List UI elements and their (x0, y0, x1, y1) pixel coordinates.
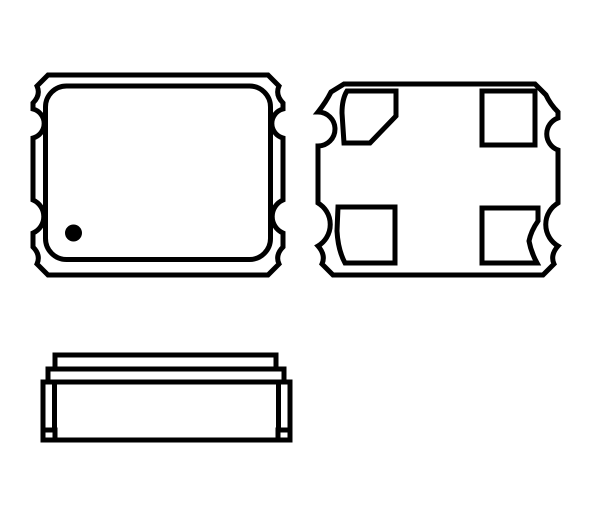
side-view-left-foot-pad (43, 430, 55, 440)
side-view-right-foot-pad (278, 430, 290, 440)
bottom-view-outer-outline (318, 84, 558, 275)
pin1-marker-dot (65, 225, 82, 242)
pad-2 (482, 91, 535, 145)
side-view-base-body (43, 382, 290, 440)
pad-1-chamfered (342, 91, 396, 143)
pad-3 (482, 208, 538, 263)
package-drawing (0, 0, 600, 514)
side-view (43, 355, 290, 440)
bottom-view (318, 84, 558, 275)
pad-4 (337, 207, 395, 263)
package-outline-drawing-page (0, 0, 600, 514)
top-view-outer-outline (33, 75, 283, 275)
top-view (33, 75, 283, 275)
